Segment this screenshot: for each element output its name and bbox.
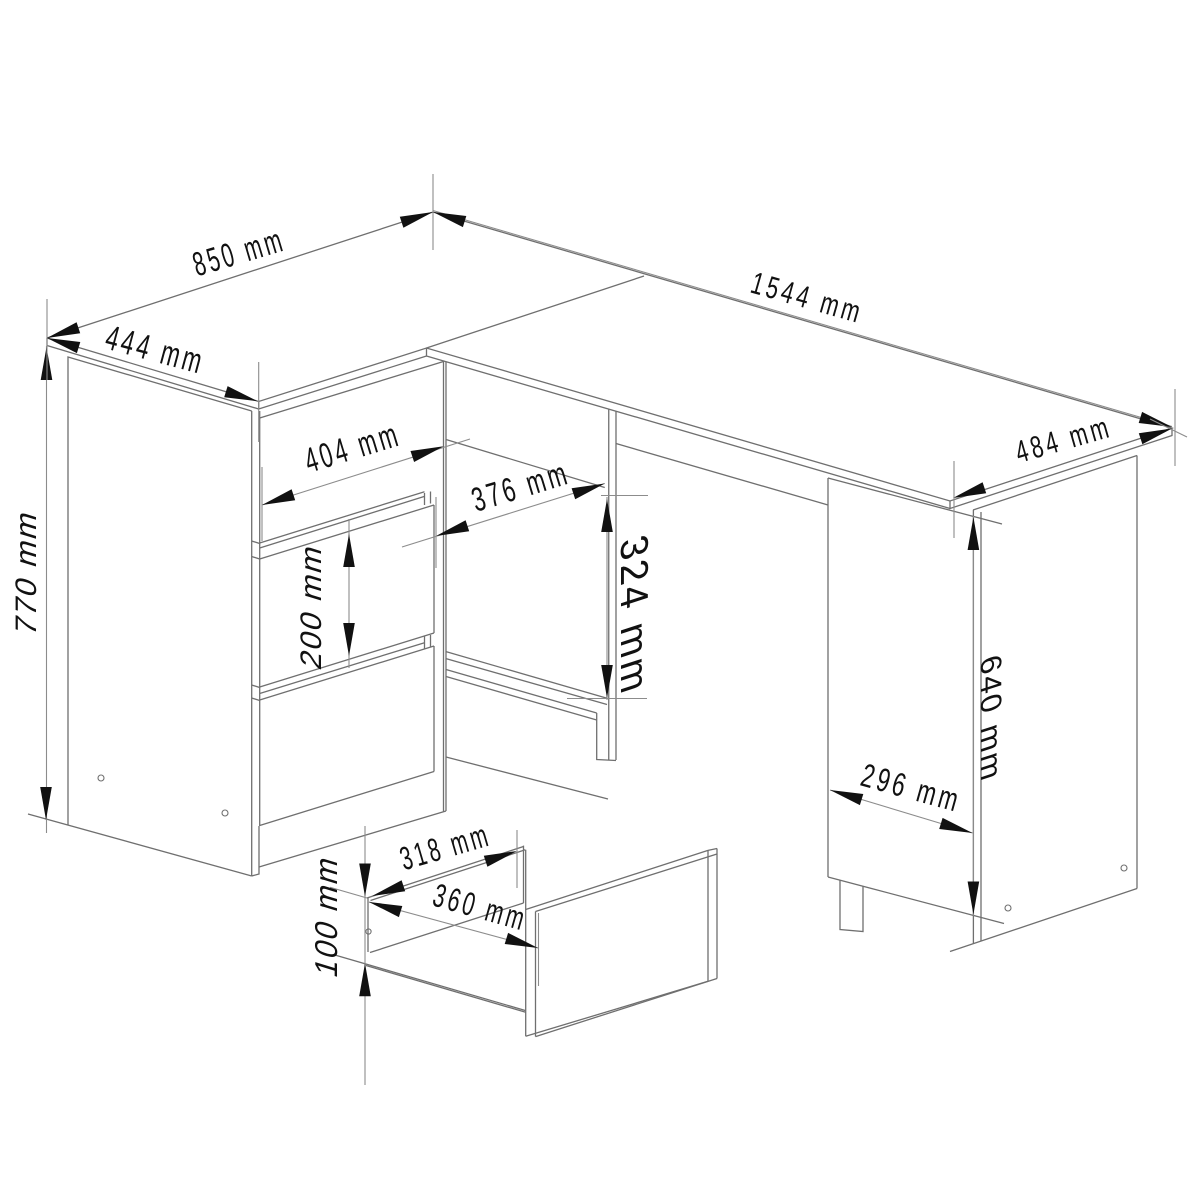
svg-text:100 mm: 100 mm <box>308 850 343 981</box>
svg-text:200 mm: 200 mm <box>294 539 327 673</box>
svg-text:324 mm: 324 mm <box>612 530 656 701</box>
svg-text:770 mm: 770 mm <box>9 505 42 639</box>
svg-text:640 mm: 640 mm <box>974 650 1007 786</box>
